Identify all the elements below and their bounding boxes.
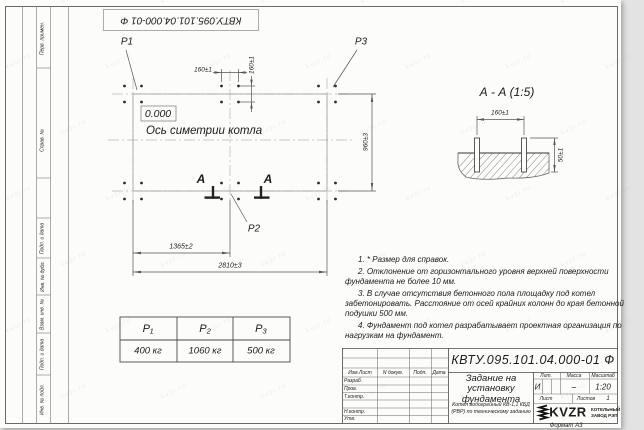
tb-sheet-label: Лист: [540, 396, 553, 402]
tb-row-prov: Пров.: [344, 386, 357, 392]
tb-rev-header-izm: Изм.Лист: [348, 370, 372, 376]
side-label-inv-podl: Инв. № подл.: [38, 378, 49, 420]
note-2: 2. Отклонение от горизонтального уровня …: [345, 267, 631, 287]
tb-doc-number: КВТУ.095.101.04.000-01 Ф: [451, 353, 614, 367]
dim-2810: 2810±3: [218, 263, 241, 270]
tb-sheets-value: 1: [606, 396, 609, 402]
section-view-title: А - А (1:5): [480, 85, 535, 99]
tb-rev-header-podp: Подп.: [413, 370, 426, 376]
dim-1365: 1365±2: [169, 244, 192, 251]
dim-160-horizontal: 160±1: [194, 66, 212, 73]
tb-scale-value: 1:20: [595, 382, 611, 391]
tb-format-label: Формат А3: [550, 423, 583, 429]
note-1: 1. * Размер для справок.: [345, 255, 631, 265]
load-point-label-p3: P3: [355, 37, 367, 48]
tb-row-razrab: Разраб.: [344, 378, 362, 384]
dim-960: 960±3: [363, 133, 370, 151]
drawing-canvas: kvzr.rukvzr.rukvzr.rukvzr.rukvzr.rukvzr.…: [0, 0, 644, 430]
tb-sheets-label: Листов: [577, 396, 595, 402]
tb-row-nkontr: Н.контр.: [344, 409, 365, 415]
side-label-podp-data-1: Подп. и дата: [38, 221, 49, 255]
tb-mass-header: Масса: [567, 373, 582, 379]
load-point-label-p2: P2: [248, 224, 260, 235]
tb-document-title: Задание на установку фундамента: [450, 374, 532, 405]
load-table-header-p3: P₃: [255, 323, 267, 335]
tb-row-tkontr: Т.контр.: [344, 394, 364, 400]
tb-mass-value: –: [572, 382, 576, 391]
side-label-sprav-n: Справ. №: [38, 110, 49, 170]
tb-logo-caption-2: ЗАВОД РЭП: [591, 413, 618, 418]
load-table-value-p3: 500 кг: [247, 346, 275, 357]
tb-lit-value: И: [535, 382, 541, 391]
side-label-podp-data-2: Подп. и дата: [38, 336, 49, 372]
elevation-mark: 0.000: [145, 108, 171, 120]
tb-rev-header-data: Дата: [432, 370, 445, 376]
tb-lit-header: Лит.: [540, 373, 552, 379]
note-3: 3. В случае отсутствия бетонного пола пл…: [345, 289, 631, 319]
dim-160-vertical: 160±1: [249, 56, 256, 74]
load-table-header-p2: P₂: [199, 323, 211, 335]
tb-row-utv: Утв.: [344, 416, 355, 422]
tb-rev-header-dokum: N докум.: [383, 370, 403, 376]
load-table-value-p2: 1060 кг: [189, 346, 222, 357]
section-letter-left: А: [197, 172, 206, 186]
notes-block: 1. * Размер для справок. 2. Отклонение о…: [345, 255, 631, 343]
symmetry-axis-label: Ось симетрии котла: [146, 125, 262, 137]
section-dim-160: 160±1: [491, 109, 509, 116]
top-stamp-doc-number: КВТУ.095.101.04.000-01 Ф: [120, 15, 241, 26]
tb-scale-header: Масштаб: [591, 373, 614, 379]
load-point-label-p1: P1: [121, 37, 133, 48]
load-table-value-p1: 400 кг: [134, 346, 162, 357]
side-label-perv-primen: Перв. примен.: [38, 11, 49, 65]
note-4: 4. Фундамент под котел разрабатывает про…: [345, 321, 631, 341]
section-letter-right: А: [264, 172, 273, 186]
spring-icon: [540, 406, 548, 420]
tb-document-subtitle: Котел водогрейный КВ-1,1 КБД (РВР) по те…: [450, 402, 532, 415]
tb-logo-text: KVZR: [549, 405, 586, 420]
load-table-header-p1: P₁: [143, 323, 154, 335]
section-dim-50: 50±1: [558, 148, 565, 162]
tb-logo-caption-1: КОТЕЛЬНЫЙ: [591, 407, 620, 412]
side-label-vzam-inv: Взам. инв. №: [38, 298, 49, 330]
side-label-inv-dubl: Инв. № дубл.: [38, 261, 49, 292]
